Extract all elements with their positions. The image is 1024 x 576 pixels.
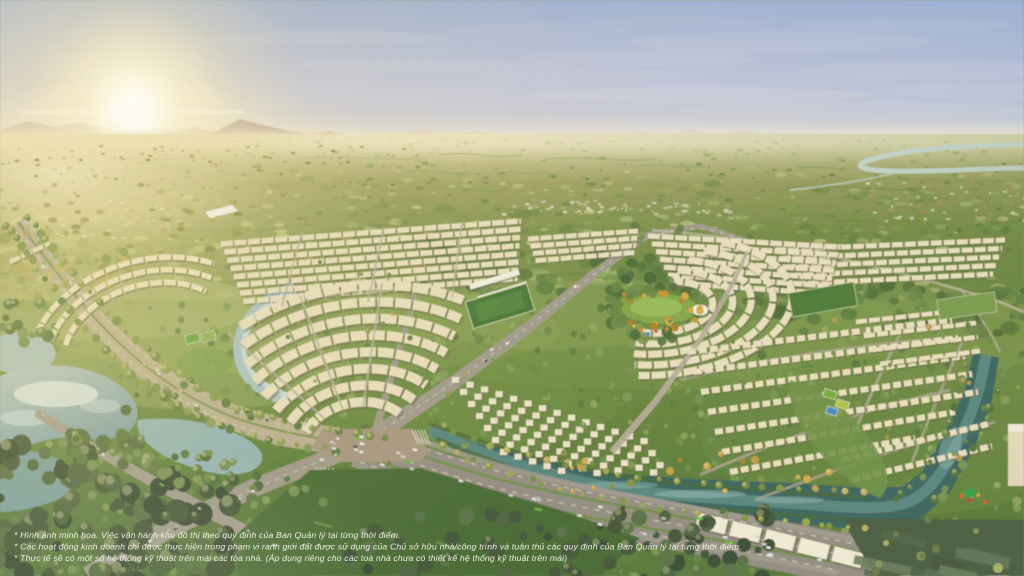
svg-text:* Hình ảnh minh họa. Việc vận: * Hình ảnh minh họa. Việc vận hành khu đ…: [14, 530, 401, 540]
svg-text:* Thực tế sẽ có một số hệ thốn: * Thực tế sẽ có một số hệ thống kỹ thuật…: [14, 553, 567, 563]
svg-text:* Các hoạt động kinh doanh chỉ: * Các hoạt động kinh doanh chỉ được thực…: [14, 542, 742, 552]
